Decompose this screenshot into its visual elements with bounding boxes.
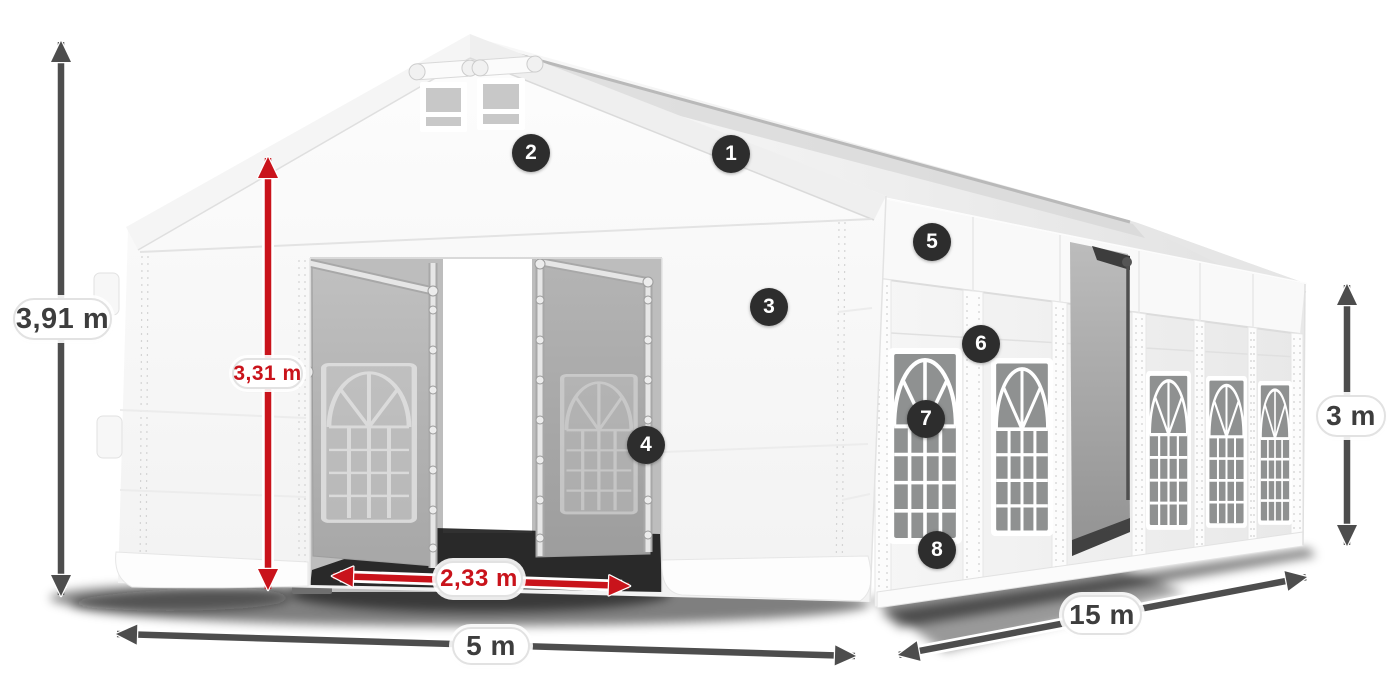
dimension-label-outer-height: 3,91 m: [13, 298, 112, 340]
side-window-3: [1146, 371, 1191, 530]
front-opening-interior: [292, 258, 662, 594]
callout-4: 4: [627, 426, 665, 464]
dimension-label-side-height: 3 m: [1316, 395, 1386, 437]
open-door-left: [312, 263, 433, 566]
side-window-5: [1258, 381, 1292, 525]
side-window-2: [991, 358, 1053, 536]
callout-3: 3: [750, 288, 788, 326]
front-skirt-right: [662, 556, 871, 601]
callout-5: 5: [913, 223, 951, 261]
dimension-label-side-length: 15 m: [1062, 595, 1142, 635]
side-window-1: [888, 348, 962, 544]
open-door-right: [536, 262, 650, 557]
wall-tension-tab: [97, 416, 122, 458]
callout-2: 2: [512, 134, 550, 172]
dimension-label-front-width: 5 m: [452, 627, 530, 665]
vent-window-left: [420, 82, 467, 132]
callout-1: 1: [712, 135, 750, 173]
side-window-4: [1206, 376, 1247, 528]
callout-6: 6: [962, 325, 1000, 363]
side-doorway-opening: [1070, 242, 1132, 556]
callout-7: 7: [907, 400, 945, 438]
callout-8: 8: [918, 531, 956, 569]
dimension-label-inner-height: 3,31 m: [232, 358, 303, 389]
vent-window-right: [477, 78, 525, 130]
tent-illustration: [0, 0, 1400, 700]
tent-dimension-diagram: 3,91 m 3,31 m 2,33 m 5 m 15 m 3 m 1 2 3 …: [0, 0, 1400, 700]
dimension-label-entrance-width: 2,33 m: [435, 561, 523, 597]
through-view: [443, 258, 532, 533]
